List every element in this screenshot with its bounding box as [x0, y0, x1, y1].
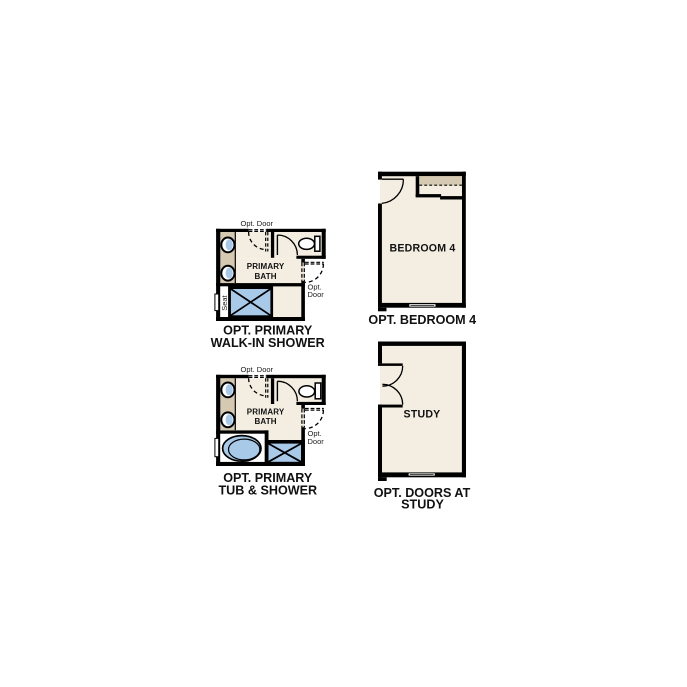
svg-text:BEDROOM 4: BEDROOM 4: [390, 242, 456, 254]
svg-text:WALK-IN SHOWER: WALK-IN SHOWER: [211, 336, 325, 350]
svg-text:Door: Door: [308, 290, 325, 299]
svg-text:Opt. Door: Opt. Door: [241, 365, 274, 374]
svg-text:BATH: BATH: [254, 272, 276, 281]
svg-text:BATH: BATH: [254, 417, 276, 426]
svg-text:OPT. BEDROOM 4: OPT. BEDROOM 4: [368, 313, 476, 327]
svg-text:Seat: Seat: [220, 294, 229, 310]
svg-text:PRIMARY: PRIMARY: [247, 408, 285, 417]
svg-text:STUDY: STUDY: [404, 408, 441, 420]
svg-text:Opt. Door: Opt. Door: [241, 219, 274, 228]
svg-text:PRIMARY: PRIMARY: [247, 262, 285, 271]
svg-text:TUB & SHOWER: TUB & SHOWER: [218, 483, 317, 497]
svg-text:Door: Door: [308, 437, 325, 446]
svg-text:STUDY: STUDY: [401, 497, 444, 511]
